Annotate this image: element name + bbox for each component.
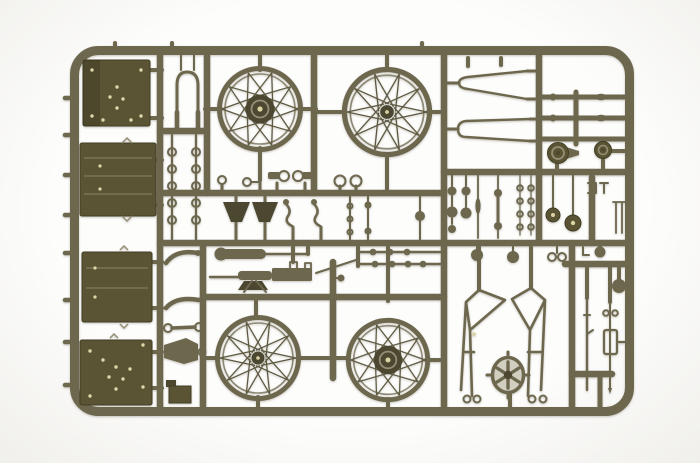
gun-sights (290, 262, 311, 268)
gun-receiver (272, 268, 312, 281)
wheel-front-left-drum (220, 69, 301, 150)
shell-halves (458, 71, 530, 141)
gun-jacket (238, 271, 272, 280)
bell-part (164, 338, 198, 364)
fender-parts (164, 250, 206, 403)
fork-sliders (177, 112, 198, 128)
bracket-body (169, 386, 191, 403)
control-levers (283, 199, 320, 226)
fan-wheel (487, 352, 529, 398)
box-panel-ribbed-2 (82, 246, 152, 328)
exhaust-rods (546, 94, 622, 122)
fender-blade-2 (166, 299, 199, 308)
front-fork (177, 55, 198, 128)
seat-funnels (223, 202, 278, 222)
shell-half-round (458, 119, 530, 141)
tie-bar (172, 327, 195, 328)
wheel-rear-left (218, 318, 299, 399)
sprue (65, 43, 630, 412)
box-panel-riveted-2 (80, 334, 152, 405)
sprue-photo: Photograph of an olive drab injection-mo… (0, 0, 700, 463)
mid-rails (350, 196, 420, 243)
eyelet-rack (168, 131, 200, 243)
fork-stems (181, 55, 194, 70)
box-panels (80, 60, 156, 405)
box-panel-ribbed-1 (80, 138, 156, 221)
wheel-front-right (344, 69, 429, 154)
wheel-rear-right-drum (348, 320, 427, 399)
fender-blade-1 (166, 252, 198, 263)
fork-arch (177, 72, 198, 128)
box-panel-riveted-1 (83, 60, 150, 126)
panel-clip (110, 334, 118, 338)
link-rods (358, 250, 445, 267)
shell-half-tapered (459, 71, 527, 99)
rod-assembly (603, 302, 625, 394)
